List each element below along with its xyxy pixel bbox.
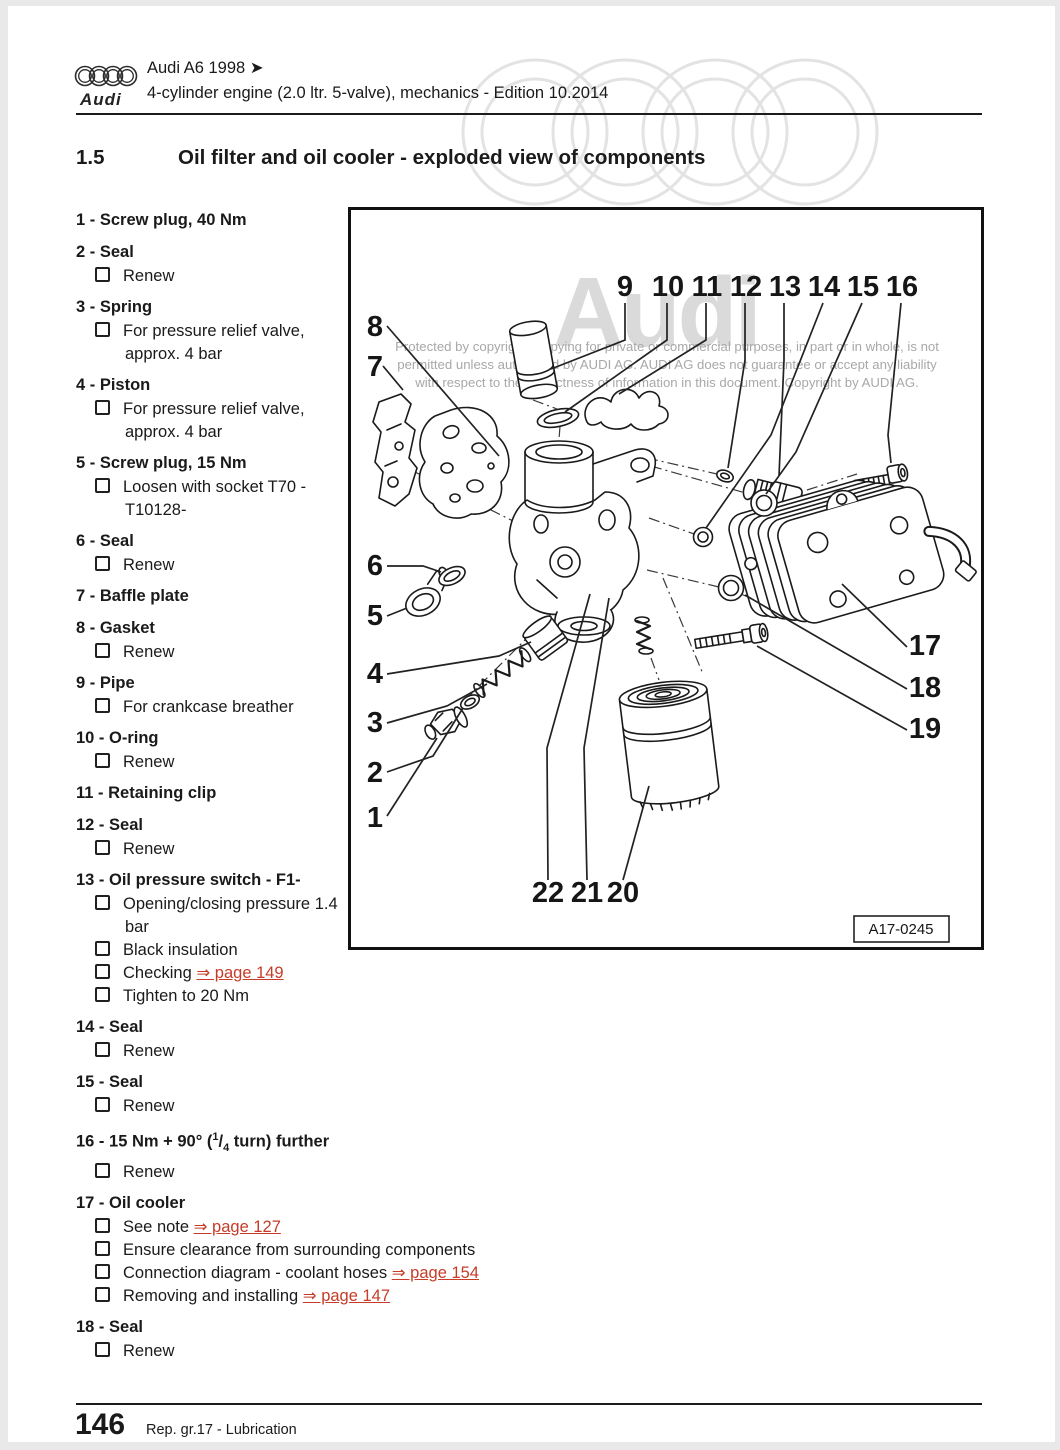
part-item: 17 - Oil coolerSee note ⇒ page 127Ensure… [76,1191,984,1308]
checkbox-icon [95,987,110,1002]
callout-number: 16 [886,271,918,303]
header-rule [76,113,982,115]
sub-text: For pressure relief valve, approx. 4 bar [123,400,305,441]
leader-line [387,608,407,616]
callout-number: 22 [532,877,564,909]
sub-item: Connection diagram - coolant hoses ⇒ pag… [76,1262,984,1285]
sub-text: Renew [123,556,174,574]
checkbox-icon [95,1264,110,1279]
checkbox-icon [95,1163,110,1178]
callout-number: 14 [808,271,840,303]
part-title: 16 - 15 Nm + 90° (1/4 turn) further [76,1125,984,1161]
sub-text: Renew [123,1163,174,1181]
checkbox-icon [95,964,110,979]
callout-number: 6 [367,550,383,582]
section-number: 1.5 [76,146,178,170]
part-seal-15 [751,490,777,516]
header-edition-line: 4-cylinder engine (2.0 ltr. 5-valve), me… [147,84,608,103]
checkbox-icon [95,1097,110,1112]
section-heading: 1.5Oil filter and oil cooler - exploded … [76,146,705,170]
checkbox-icon [95,1287,110,1302]
callout-number: 15 [847,271,879,303]
sub-text: Removing and installing [123,1287,303,1305]
callout-number: 13 [769,271,801,303]
callout-number: 11 [692,271,723,303]
sub-item: Checking ⇒ page 149 [76,962,984,985]
sub-item: Renew [76,1340,984,1363]
page-edge [0,0,1060,6]
callout-number: 21 [571,877,603,909]
checkbox-icon [95,643,110,658]
checkbox-icon [95,1042,110,1057]
part-title: 14 - Seal [76,1015,984,1040]
sub-item: Renew [76,1095,984,1118]
manual-page: Audi Audi A6 1998 ➤ 4-cylinder engine (2… [0,0,1060,1450]
footer-rule [76,1403,982,1405]
callout-number: 9 [617,271,633,303]
checkbox-icon [95,941,110,956]
sub-text: Renew [123,267,174,285]
page-link[interactable]: ⇒ page 149 [196,964,283,982]
sub-item: Renew [76,1040,984,1063]
callout-number: 7 [367,351,383,383]
sub-text: Loosen with socket T70 - T10128- [123,478,306,519]
checkbox-icon [95,478,110,493]
part-item: 16 - 15 Nm + 90° (1/4 turn) furtherRenew [76,1125,984,1184]
part-bolt-19 [694,623,769,652]
page-edge [0,1442,1060,1450]
checkbox-icon [95,322,110,337]
part-baffle-plate [373,394,417,506]
part-title: 18 - Seal [76,1315,984,1340]
callout-number: 5 [367,600,383,632]
checkbox-icon [95,895,110,910]
page-link[interactable]: ⇒ page 154 [392,1264,479,1282]
callout-number: 3 [367,707,383,739]
part-item: 15 - SealRenew [76,1070,984,1118]
part-seal-18 [719,576,744,601]
page-edge [0,0,8,1450]
sub-item: Tighten to 20 Nm [76,985,984,1008]
sub-item: Removing and installing ⇒ page 147 [76,1285,984,1308]
sub-text: Renew [123,1097,174,1115]
checkbox-icon [95,556,110,571]
sub-item: See note ⇒ page 127 [76,1216,984,1239]
part-filter-housing [509,441,655,642]
leader-line [757,646,907,730]
callout-number: 17 [909,630,941,662]
callout-number: 18 [909,672,941,704]
part-title: 17 - Oil cooler [76,1191,984,1216]
sub-text: Black insulation [123,941,238,959]
section-title: Oil filter and oil cooler - exploded vie… [178,146,705,169]
sub-text: Opening/closing pressure 1.4 bar [123,895,338,936]
part-item: 18 - SealRenew [76,1315,984,1363]
checkbox-icon [95,753,110,768]
checkbox-icon [95,1241,110,1256]
leader-line [387,566,441,572]
callout-number: 1 [367,802,383,834]
sub-text: Tighten to 20 Nm [123,987,249,1005]
audi-wordmark: Audi [80,90,122,110]
sub-text: Renew [123,1042,174,1060]
svg-text:with respect to the correctnes: with respect to the correctness of infor… [414,375,919,390]
page-link[interactable]: ⇒ page 147 [303,1287,390,1305]
part-title: 15 - Seal [76,1070,984,1095]
audi-logo-icon [74,56,140,92]
callout-number: 2 [367,757,383,789]
sub-text: Connection diagram - coolant hoses [123,1264,392,1282]
part-gasket [419,408,508,519]
callout-number: 19 [909,713,941,745]
sub-text: Renew [123,753,174,771]
part-item: 14 - SealRenew [76,1015,984,1063]
sub-text: Ensure clearance from surrounding compon… [123,1241,475,1259]
callout-number: 12 [730,271,762,303]
audi-rings-watermark [455,52,885,217]
part-oil-filter [618,677,721,815]
page-edge [1055,0,1060,1450]
part-spring-21 [635,617,653,654]
checkbox-icon [95,400,110,415]
sub-item: Ensure clearance from surrounding compon… [76,1239,984,1262]
page-number: 146 [75,1408,125,1442]
part-seal-14 [694,528,713,547]
page-link[interactable]: ⇒ page 127 [194,1218,281,1236]
leader-line [766,303,862,494]
checkbox-icon [95,840,110,855]
part-retaining-clip [585,389,668,430]
part-seal-12 [715,468,735,484]
checkbox-icon [95,1342,110,1357]
header-model-line: Audi A6 1998 ➤ [147,58,264,78]
svg-text:Protected by copyright. Copyin: Protected by copyright. Copying for priv… [395,339,939,354]
sub-text: See note [123,1218,194,1236]
sub-text: Renew [123,840,174,858]
sub-text: Renew [123,1342,174,1360]
sub-text: For crankcase breather [123,698,294,716]
footer-section: Rep. gr.17 - Lubrication [146,1422,297,1438]
callout-number: 20 [607,877,639,909]
image-code: A17-0245 [868,921,933,938]
callout-number: 4 [367,658,383,690]
exploded-view-figure: Audi Protected by copyright. Copying for… [348,207,984,950]
sub-text: Renew [123,643,174,661]
callout-number: 8 [367,311,383,343]
leader-line [387,738,437,816]
checkbox-icon [95,698,110,713]
checkbox-icon [95,1218,110,1233]
sub-text: For pressure relief valve, approx. 4 bar [123,322,305,363]
checkbox-icon [95,267,110,282]
sub-text: Checking [123,964,196,982]
image-code-box: A17-0245 [854,916,949,942]
callout-number: 10 [652,271,684,303]
sub-item: Renew [76,1161,984,1184]
part-o-ring-10 [536,405,581,430]
